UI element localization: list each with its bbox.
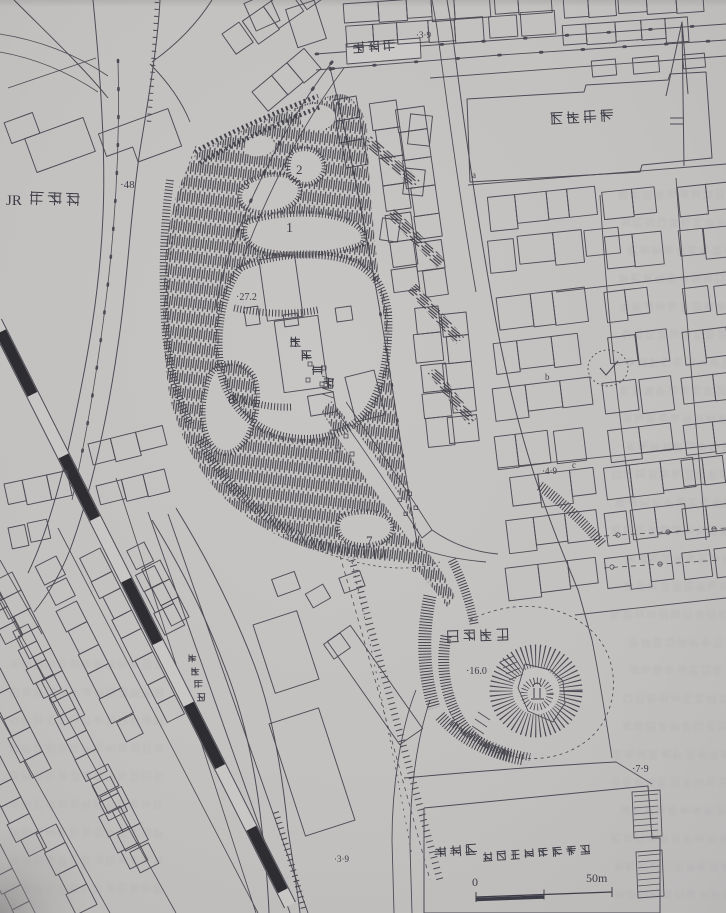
svg-text:d: d xyxy=(412,564,417,574)
svg-text:·4·9: ·4·9 xyxy=(542,466,557,476)
svg-text:c: c xyxy=(572,460,576,470)
svg-text:·27.2: ·27.2 xyxy=(236,292,257,303)
svg-text:·7·9: ·7·9 xyxy=(632,764,649,775)
svg-text:JR: JR xyxy=(6,193,22,209)
svg-text:b: b xyxy=(545,372,550,382)
svg-text:50m: 50m xyxy=(586,871,608,885)
svg-text:a: a xyxy=(472,170,476,180)
svg-text:3: 3 xyxy=(243,177,250,192)
svg-text:2: 2 xyxy=(296,162,303,177)
svg-text:0: 0 xyxy=(472,875,478,889)
svg-text:·3·9: ·3·9 xyxy=(334,854,349,864)
svg-text:6: 6 xyxy=(228,393,235,408)
svg-text:·16.0: ·16.0 xyxy=(466,666,487,677)
svg-text:·48: ·48 xyxy=(120,179,135,191)
svg-text:1: 1 xyxy=(286,221,293,236)
svg-text:7: 7 xyxy=(366,533,373,548)
